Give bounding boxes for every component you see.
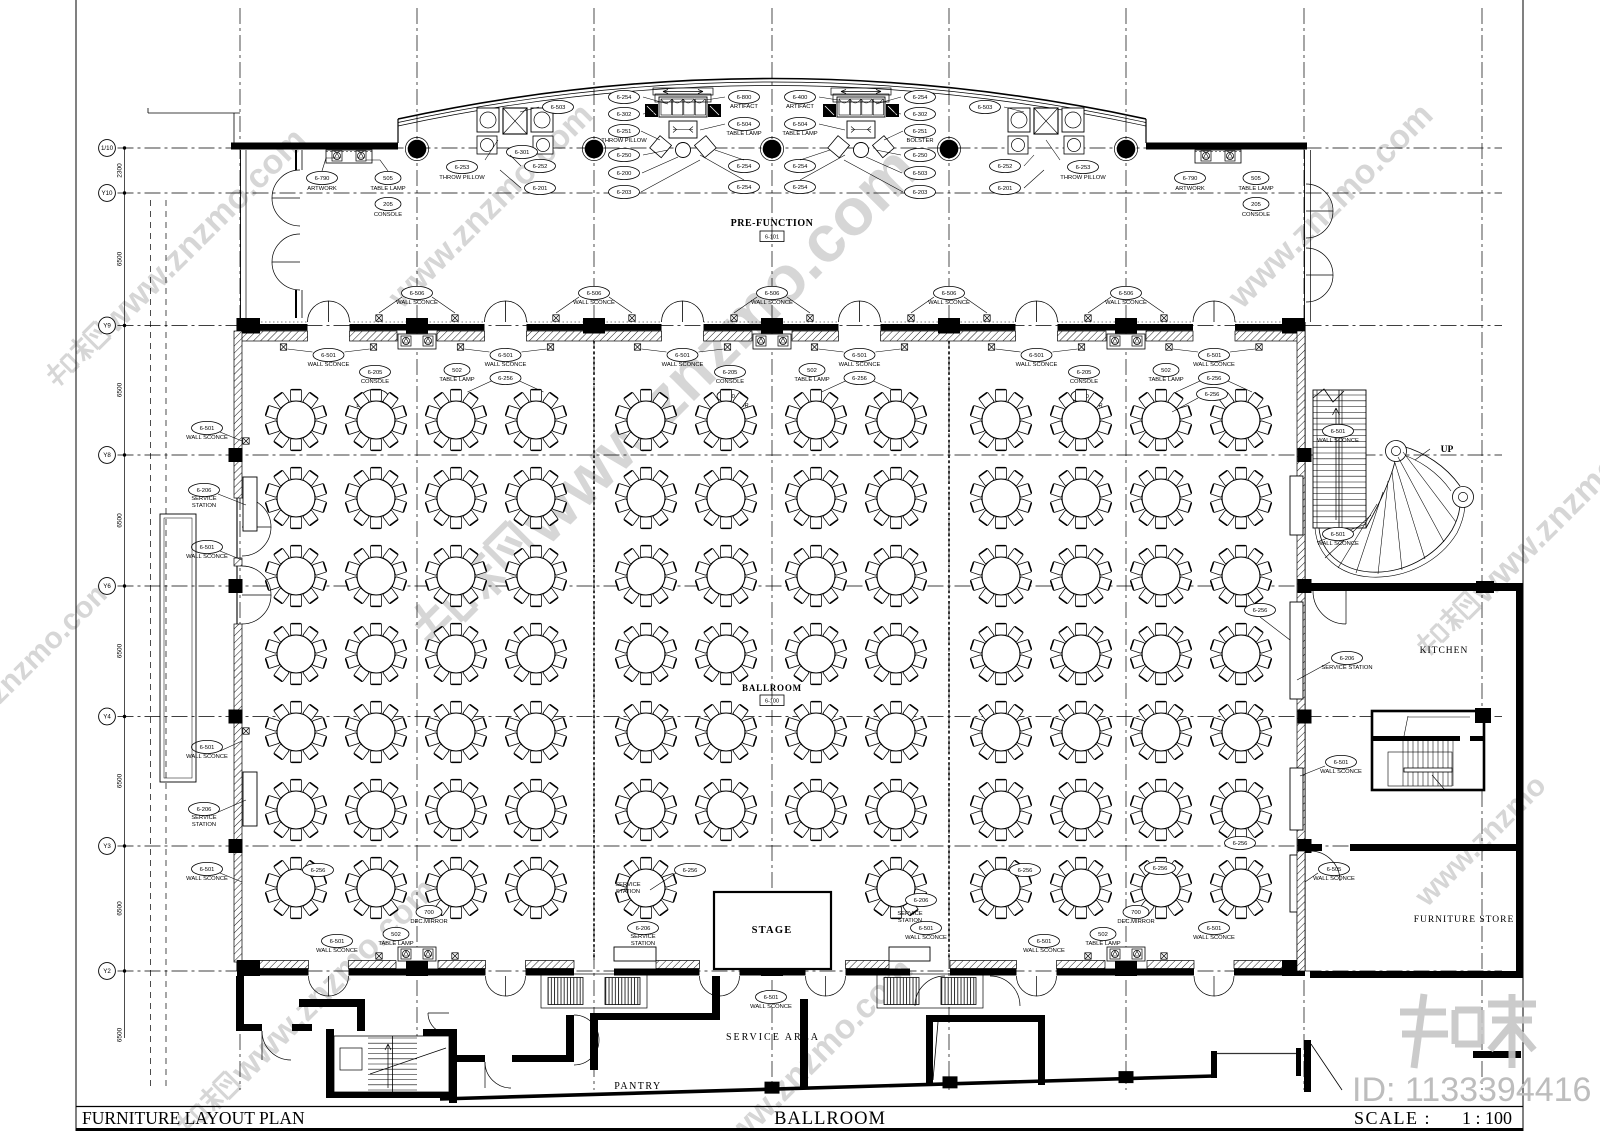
svg-text:6-501: 6-501 xyxy=(1331,429,1346,435)
svg-text:STATION: STATION xyxy=(192,822,216,828)
svg-text:6500: 6500 xyxy=(117,251,124,266)
svg-text:6-203: 6-203 xyxy=(913,190,928,196)
svg-text:WALL SCONCE: WALL SCONCE xyxy=(316,948,358,954)
svg-text:THROW PILLOW: THROW PILLOW xyxy=(439,175,485,181)
svg-text:PANTRY: PANTRY xyxy=(614,1081,662,1092)
svg-text:WALL SCONCE: WALL SCONCE xyxy=(396,300,438,306)
svg-text:6-503: 6-503 xyxy=(551,105,566,111)
svg-text:WALL SCONCE: WALL SCONCE xyxy=(1023,948,1065,954)
svg-text:6-253: 6-253 xyxy=(1076,165,1091,171)
svg-text:700: 700 xyxy=(424,910,434,916)
svg-text:6-400: 6-400 xyxy=(793,95,808,101)
svg-text:UP: UP xyxy=(1441,445,1454,455)
svg-text:6-501: 6-501 xyxy=(1037,939,1052,945)
svg-text:STATION: STATION xyxy=(616,889,640,895)
svg-text:ARTWORK: ARTWORK xyxy=(1175,186,1205,192)
svg-text:502: 502 xyxy=(391,932,401,938)
svg-text:ARTWORK: ARTWORK xyxy=(307,186,337,192)
svg-text:505: 505 xyxy=(383,176,393,182)
svg-text:WALL SCONCE: WALL SCONCE xyxy=(751,300,793,306)
svg-text:STAGE: STAGE xyxy=(752,925,793,936)
svg-text:THROW PILLOW: THROW PILLOW xyxy=(601,138,647,144)
svg-text:TABLE LAMP: TABLE LAMP xyxy=(439,377,474,383)
svg-text:CONSOLE: CONSOLE xyxy=(1070,379,1098,385)
svg-text:6-206: 6-206 xyxy=(197,807,212,813)
svg-text:WALL SCONCE: WALL SCONCE xyxy=(662,362,704,368)
svg-text:502: 502 xyxy=(452,368,462,374)
svg-text:SERVICE: SERVICE xyxy=(630,934,655,940)
svg-text:6-252: 6-252 xyxy=(998,164,1013,170)
svg-text:6-503: 6-503 xyxy=(913,171,928,177)
svg-text:PRE-FUNCTION: PRE-FUNCTION xyxy=(731,218,814,229)
svg-text:WALL SCONCE: WALL SCONCE xyxy=(1313,876,1355,882)
svg-text:6-206: 6-206 xyxy=(197,488,212,494)
svg-text:Y10: Y10 xyxy=(101,190,113,197)
svg-text:FURNITURE LAYOUT PLAN: FURNITURE LAYOUT PLAN xyxy=(82,1108,305,1128)
svg-text:6500: 6500 xyxy=(117,643,124,658)
svg-text:6-800: 6-800 xyxy=(737,95,752,101)
svg-text:6-501: 6-501 xyxy=(1331,532,1346,538)
svg-text:WALL SCONCE: WALL SCONCE xyxy=(1317,541,1359,547)
svg-text:6-501: 6-501 xyxy=(1334,760,1349,766)
svg-text:6-254: 6-254 xyxy=(737,185,753,191)
svg-text:STATION: STATION xyxy=(192,503,216,509)
svg-text:ARTIFACT: ARTIFACT xyxy=(730,104,758,110)
svg-text:TABLE LAMP: TABLE LAMP xyxy=(782,131,817,137)
svg-text:6-790: 6-790 xyxy=(315,176,330,182)
svg-text:6-206: 6-206 xyxy=(914,898,929,904)
svg-text:WALL SCONCE: WALL SCONCE xyxy=(1105,300,1147,306)
svg-text:6-250: 6-250 xyxy=(913,153,928,159)
svg-text:SERVICE: SERVICE xyxy=(615,882,640,888)
svg-text:BALLROOM: BALLROOM xyxy=(774,1109,886,1129)
svg-text:6-256: 6-256 xyxy=(852,376,867,382)
svg-text:6-501: 6-501 xyxy=(200,867,215,873)
svg-text:WALL SCONCE: WALL SCONCE xyxy=(1317,438,1359,444)
svg-text:WALL SCONCE: WALL SCONCE xyxy=(1016,362,1058,368)
svg-text:KITCHEN: KITCHEN xyxy=(1420,646,1469,656)
svg-text:DEC.MIRROR: DEC.MIRROR xyxy=(1117,919,1154,925)
svg-text:6-256: 6-256 xyxy=(683,868,698,874)
svg-text:6-506: 6-506 xyxy=(942,291,957,297)
svg-text:6-201: 6-201 xyxy=(998,186,1013,192)
svg-text:Y8: Y8 xyxy=(103,452,111,459)
svg-text:6-254: 6-254 xyxy=(913,95,929,101)
svg-text:6-203: 6-203 xyxy=(617,190,632,196)
svg-text:STATION: STATION xyxy=(631,941,655,947)
svg-text:6-206: 6-206 xyxy=(1340,656,1355,662)
svg-text:6-251: 6-251 xyxy=(913,129,928,135)
svg-text:6-501: 6-501 xyxy=(764,995,779,1001)
svg-text:6-506: 6-506 xyxy=(587,291,602,297)
svg-text:CONSOLE: CONSOLE xyxy=(361,379,389,385)
svg-text:6500: 6500 xyxy=(117,513,124,528)
svg-text:6-501: 6-501 xyxy=(675,353,690,359)
svg-text:6-254: 6-254 xyxy=(617,95,633,101)
svg-text:6-256: 6-256 xyxy=(1205,392,1220,398)
svg-text:6-252: 6-252 xyxy=(533,164,548,170)
svg-text:6-256: 6-256 xyxy=(498,376,513,382)
svg-text:SERVICE: SERVICE xyxy=(191,496,216,502)
svg-text:6-501: 6-501 xyxy=(321,353,336,359)
svg-text:6-501: 6-501 xyxy=(200,745,215,751)
svg-text:TABLE LAMP: TABLE LAMP xyxy=(726,131,761,137)
svg-text:WALL SCONCE: WALL SCONCE xyxy=(308,362,350,368)
svg-text:WALL SCONCE: WALL SCONCE xyxy=(750,1004,792,1010)
svg-text:TABLE LAMP: TABLE LAMP xyxy=(1148,377,1183,383)
svg-text:6-256: 6-256 xyxy=(311,868,326,874)
svg-text:6500: 6500 xyxy=(117,382,124,397)
svg-text:6-505: 6-505 xyxy=(1327,867,1342,873)
svg-text:6-501: 6-501 xyxy=(1207,353,1222,359)
svg-text:6-256: 6-256 xyxy=(1153,866,1168,872)
svg-text:WALL SCONCE: WALL SCONCE xyxy=(186,754,228,760)
svg-text:WALL SCONCE: WALL SCONCE xyxy=(1320,769,1362,775)
svg-text:6-501: 6-501 xyxy=(919,926,934,932)
svg-text:Y4: Y4 xyxy=(103,714,111,721)
svg-text:6-100: 6-100 xyxy=(765,699,779,705)
svg-text:502: 502 xyxy=(1098,932,1108,938)
svg-text:TABLE LAMP: TABLE LAMP xyxy=(794,377,829,383)
svg-text:6-501: 6-501 xyxy=(1029,353,1044,359)
svg-text:BALLROOM: BALLROOM xyxy=(742,683,802,693)
svg-text:6-206: 6-206 xyxy=(636,926,651,932)
svg-text:6-504: 6-504 xyxy=(737,122,753,128)
svg-text:6-256: 6-256 xyxy=(1207,376,1222,382)
svg-text:BOLSTER: BOLSTER xyxy=(906,138,933,144)
svg-text:TABLE LAMP: TABLE LAMP xyxy=(1238,186,1273,192)
svg-text:6-790: 6-790 xyxy=(1183,176,1198,182)
svg-text:WALL SCONCE: WALL SCONCE xyxy=(928,300,970,306)
svg-text:6-256: 6-256 xyxy=(1253,608,1268,614)
svg-text:CONSOLE: CONSOLE xyxy=(1242,212,1270,218)
svg-text:SERVICE STATION: SERVICE STATION xyxy=(1321,665,1372,671)
svg-text:205: 205 xyxy=(1251,202,1261,208)
svg-text:6-504: 6-504 xyxy=(793,122,809,128)
svg-text:6-501: 6-501 xyxy=(200,545,215,551)
svg-text:6-256: 6-256 xyxy=(1233,841,1248,847)
svg-text:CONSOLE: CONSOLE xyxy=(716,379,744,385)
svg-text:SCALE :: SCALE : xyxy=(1354,1108,1431,1128)
svg-text:6-501: 6-501 xyxy=(852,353,867,359)
svg-text:6-250: 6-250 xyxy=(617,153,632,159)
svg-text:700: 700 xyxy=(1131,910,1141,916)
svg-text:CONSOLE: CONSOLE xyxy=(374,212,402,218)
svg-text:ARTIFACT: ARTIFACT xyxy=(786,104,814,110)
svg-text:6-205: 6-205 xyxy=(1077,370,1092,376)
svg-text:6-501: 6-501 xyxy=(330,939,345,945)
svg-text:6-302: 6-302 xyxy=(617,112,632,118)
svg-text:WALL SCONCE: WALL SCONCE xyxy=(905,935,947,941)
svg-text:6-506: 6-506 xyxy=(765,291,780,297)
svg-text:6500: 6500 xyxy=(117,901,124,916)
svg-text:6-506: 6-506 xyxy=(1119,291,1134,297)
svg-text:6-302: 6-302 xyxy=(913,112,928,118)
svg-text:WALL SCONCE: WALL SCONCE xyxy=(186,435,228,441)
svg-text:6-301: 6-301 xyxy=(515,150,530,156)
svg-text:WALL SCONCE: WALL SCONCE xyxy=(485,362,527,368)
svg-text:6-501: 6-501 xyxy=(498,353,513,359)
svg-text:6-501: 6-501 xyxy=(1207,926,1222,932)
svg-text:502: 502 xyxy=(807,368,817,374)
svg-text:Y3: Y3 xyxy=(103,843,111,850)
svg-text:6-256: 6-256 xyxy=(1018,868,1033,874)
svg-text:Y9: Y9 xyxy=(103,323,111,330)
svg-text:DEC.MIRROR: DEC.MIRROR xyxy=(410,919,447,925)
svg-text:TABLE LAMP: TABLE LAMP xyxy=(378,941,413,947)
svg-text:6-254: 6-254 xyxy=(793,164,809,170)
svg-text:2300: 2300 xyxy=(117,163,124,178)
svg-text:6-253: 6-253 xyxy=(455,165,470,171)
svg-text:SERVICE: SERVICE xyxy=(897,911,922,917)
svg-text:505: 505 xyxy=(1251,176,1261,182)
svg-text:6-501: 6-501 xyxy=(200,426,215,432)
svg-text:WALL SCONCE: WALL SCONCE xyxy=(1193,935,1235,941)
svg-text:WALL SCONCE: WALL SCONCE xyxy=(839,362,881,368)
svg-text:THROW PILLOW: THROW PILLOW xyxy=(1060,175,1106,181)
svg-text:6-200: 6-200 xyxy=(617,171,632,177)
svg-text:ID: 1133394416: ID: 1133394416 xyxy=(1352,1071,1591,1109)
svg-text:Y2: Y2 xyxy=(103,968,111,975)
svg-text:6-503: 6-503 xyxy=(978,105,993,111)
svg-text:6-506: 6-506 xyxy=(410,291,425,297)
svg-text:FURNITURE STORE: FURNITURE STORE xyxy=(1414,915,1515,925)
svg-text:6-205: 6-205 xyxy=(368,370,383,376)
svg-text:6500: 6500 xyxy=(117,1027,124,1042)
svg-text:6-254: 6-254 xyxy=(793,185,809,191)
svg-text:6-251: 6-251 xyxy=(617,129,632,135)
svg-text:TABLE LAMP: TABLE LAMP xyxy=(1085,941,1120,947)
svg-text:6500: 6500 xyxy=(117,773,124,788)
svg-text:502: 502 xyxy=(1161,368,1171,374)
svg-text:WALL SCONCE: WALL SCONCE xyxy=(573,300,615,306)
svg-text:WALL SCONCE: WALL SCONCE xyxy=(186,554,228,560)
svg-text:Y6: Y6 xyxy=(103,583,111,590)
svg-text:205: 205 xyxy=(383,202,393,208)
svg-text:SERVICE: SERVICE xyxy=(191,815,216,821)
svg-text:1 : 100: 1 : 100 xyxy=(1462,1108,1512,1128)
svg-text:6-101: 6-101 xyxy=(765,235,779,241)
svg-text:WALL SCONCE: WALL SCONCE xyxy=(1193,362,1235,368)
svg-text:WALL SCONCE: WALL SCONCE xyxy=(186,876,228,882)
svg-text:1/10: 1/10 xyxy=(101,145,114,152)
svg-text:6-254: 6-254 xyxy=(737,164,753,170)
svg-text:TABLE LAMP: TABLE LAMP xyxy=(370,186,405,192)
svg-text:6-205: 6-205 xyxy=(723,370,738,376)
svg-text:6-201: 6-201 xyxy=(533,186,548,192)
